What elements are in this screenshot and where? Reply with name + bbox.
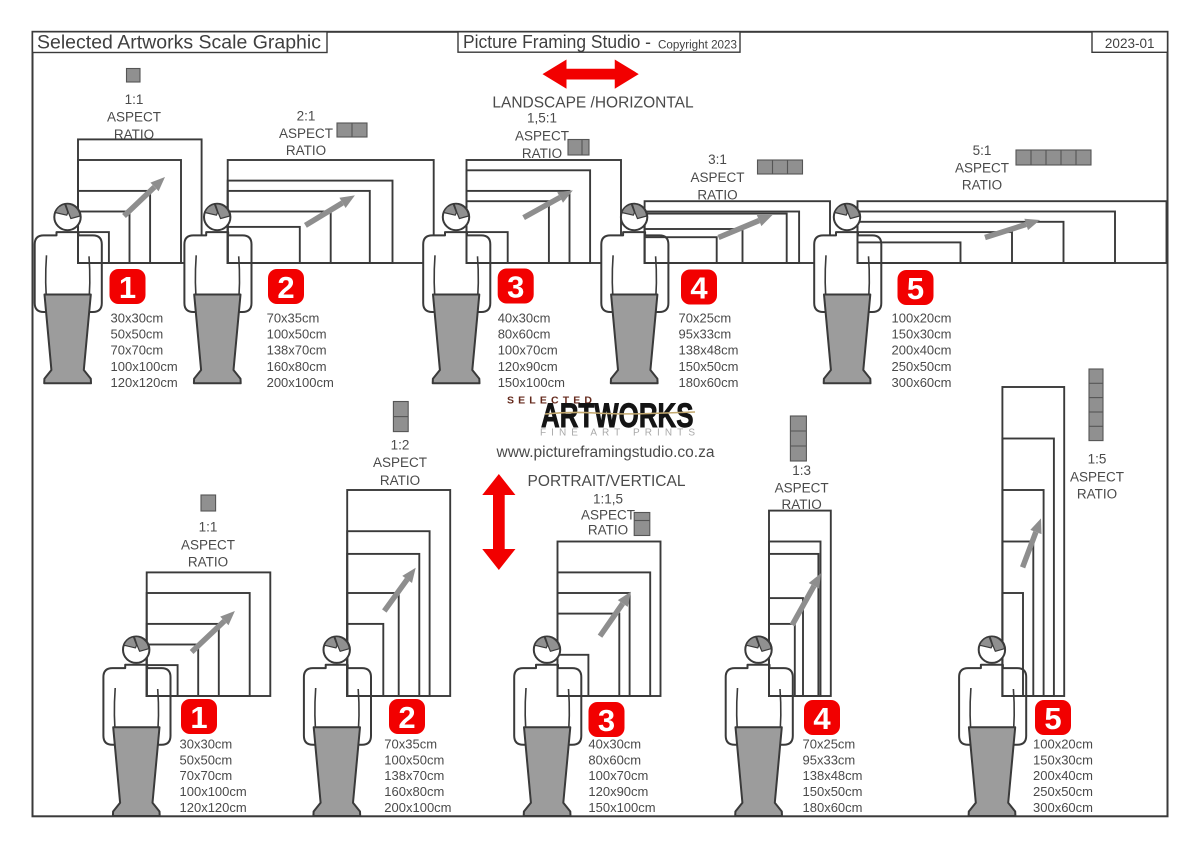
svg-text:100x100cm: 100x100cm — [180, 784, 247, 799]
svg-text:RATIO: RATIO — [1077, 487, 1117, 502]
svg-text:100x70cm: 100x70cm — [588, 768, 648, 783]
svg-text:RATIO: RATIO — [781, 497, 821, 512]
svg-text:138x48cm: 138x48cm — [679, 343, 739, 358]
svg-text:80x60cm: 80x60cm — [588, 752, 641, 767]
svg-text:ASPECT: ASPECT — [690, 170, 744, 185]
svg-text:Selected Artworks Scale Graphi: Selected Artworks Scale Graphic — [37, 32, 321, 53]
svg-text:1: 1 — [119, 270, 136, 305]
svg-text:ASPECT: ASPECT — [955, 161, 1009, 176]
svg-text:30x30cm: 30x30cm — [180, 737, 233, 752]
svg-text:ASPECT: ASPECT — [107, 110, 161, 125]
svg-text:RATIO: RATIO — [697, 188, 737, 203]
svg-text:1:1: 1:1 — [199, 520, 218, 535]
svg-text:1:3: 1:3 — [792, 463, 811, 478]
svg-text:70x70cm: 70x70cm — [111, 343, 164, 358]
svg-text:300x60cm: 300x60cm — [892, 375, 952, 390]
svg-text:138x70cm: 138x70cm — [384, 768, 444, 783]
svg-text:300x60cm: 300x60cm — [1033, 800, 1093, 815]
svg-text:1:1: 1:1 — [125, 92, 144, 107]
svg-text:1:5: 1:5 — [1088, 452, 1107, 467]
svg-text:160x80cm: 160x80cm — [267, 359, 327, 374]
svg-text:40x30cm: 40x30cm — [588, 737, 641, 752]
svg-text:1:2: 1:2 — [391, 437, 410, 452]
svg-text:100x20cm: 100x20cm — [1033, 737, 1093, 752]
svg-text:70x25cm: 70x25cm — [679, 311, 732, 326]
svg-text:150x50cm: 150x50cm — [679, 359, 739, 374]
svg-text:ASPECT: ASPECT — [373, 455, 427, 470]
svg-text:250x50cm: 250x50cm — [892, 359, 952, 374]
svg-text:2:1: 2:1 — [297, 109, 316, 124]
svg-text:160x80cm: 160x80cm — [384, 784, 444, 799]
svg-text:2: 2 — [277, 270, 294, 305]
svg-text:RATIO: RATIO — [114, 127, 154, 142]
svg-text:www.pictureframingstudio.co.za: www.pictureframingstudio.co.za — [496, 444, 715, 461]
svg-text:70x35cm: 70x35cm — [267, 311, 320, 326]
svg-text:5: 5 — [1044, 701, 1061, 736]
svg-text:150x50cm: 150x50cm — [803, 784, 863, 799]
svg-text:80x60cm: 80x60cm — [498, 327, 551, 342]
svg-text:200x40cm: 200x40cm — [892, 343, 952, 358]
svg-text:150x100cm: 150x100cm — [498, 375, 565, 390]
svg-text:120x120cm: 120x120cm — [111, 375, 178, 390]
svg-text:100x50cm: 100x50cm — [384, 752, 444, 767]
svg-text:2023-01: 2023-01 — [1105, 36, 1155, 51]
svg-text:4: 4 — [813, 701, 831, 736]
svg-text:Copyright 2023: Copyright 2023 — [658, 40, 737, 52]
svg-text:1: 1 — [190, 700, 207, 735]
svg-text:120x90cm: 120x90cm — [588, 784, 648, 799]
svg-text:5: 5 — [907, 271, 924, 306]
svg-text:3:1: 3:1 — [708, 152, 727, 167]
svg-text:100x20cm: 100x20cm — [892, 311, 952, 326]
svg-text:RATIO: RATIO — [588, 523, 628, 538]
svg-text:70x35cm: 70x35cm — [384, 737, 437, 752]
svg-text:LANDSCAPE /HORIZONTAL: LANDSCAPE /HORIZONTAL — [492, 95, 694, 112]
svg-text:150x30cm: 150x30cm — [1033, 752, 1093, 767]
svg-text:100x100cm: 100x100cm — [111, 359, 178, 374]
svg-text:3: 3 — [598, 703, 615, 738]
svg-text:100x70cm: 100x70cm — [498, 343, 558, 358]
svg-text:120x90cm: 120x90cm — [498, 359, 558, 374]
svg-text:40x30cm: 40x30cm — [498, 311, 551, 326]
svg-text:1,5:1: 1,5:1 — [527, 110, 557, 125]
svg-text:FINE ART PRINTS: FINE ART PRINTS — [540, 428, 695, 439]
svg-text:PORTRAIT/VERTICAL: PORTRAIT/VERTICAL — [528, 473, 686, 490]
svg-text:ASPECT: ASPECT — [515, 128, 569, 143]
svg-text:3: 3 — [507, 270, 524, 305]
svg-text:95x33cm: 95x33cm — [679, 327, 732, 342]
svg-text:50x50cm: 50x50cm — [180, 752, 233, 767]
svg-text:ASPECT: ASPECT — [279, 126, 333, 141]
svg-text:180x60cm: 180x60cm — [679, 375, 739, 390]
svg-text:150x100cm: 150x100cm — [588, 800, 655, 815]
svg-text:ASPECT: ASPECT — [775, 481, 829, 496]
svg-text:RATIO: RATIO — [188, 555, 228, 570]
svg-text:RATIO: RATIO — [522, 146, 562, 161]
svg-text:95x33cm: 95x33cm — [803, 752, 856, 767]
svg-text:200x40cm: 200x40cm — [1033, 768, 1093, 783]
svg-text:5:1: 5:1 — [973, 143, 992, 158]
svg-text:RATIO: RATIO — [286, 143, 326, 158]
svg-text:ASPECT: ASPECT — [1070, 470, 1124, 485]
svg-text:150x30cm: 150x30cm — [892, 327, 952, 342]
svg-text:RATIO: RATIO — [962, 178, 1002, 193]
svg-text:ASPECT: ASPECT — [181, 538, 235, 553]
svg-text:50x50cm: 50x50cm — [111, 327, 164, 342]
svg-text:Picture Framing Studio -: Picture Framing Studio - — [463, 32, 651, 52]
svg-text:138x48cm: 138x48cm — [803, 768, 863, 783]
svg-text:30x30cm: 30x30cm — [111, 311, 164, 326]
svg-text:120x120cm: 120x120cm — [180, 800, 247, 815]
svg-text:70x25cm: 70x25cm — [803, 737, 856, 752]
svg-text:250x50cm: 250x50cm — [1033, 784, 1093, 799]
svg-text:RATIO: RATIO — [380, 473, 420, 488]
svg-text:ASPECT: ASPECT — [581, 508, 635, 523]
svg-text:100x50cm: 100x50cm — [267, 327, 327, 342]
svg-text:1:1,5: 1:1,5 — [593, 492, 623, 507]
svg-text:138x70cm: 138x70cm — [267, 343, 327, 358]
svg-text:180x60cm: 180x60cm — [803, 800, 863, 815]
svg-text:2: 2 — [398, 700, 415, 735]
svg-text:200x100cm: 200x100cm — [384, 800, 451, 815]
svg-text:200x100cm: 200x100cm — [267, 375, 334, 390]
svg-text:4: 4 — [690, 271, 708, 306]
svg-text:70x70cm: 70x70cm — [180, 768, 233, 783]
